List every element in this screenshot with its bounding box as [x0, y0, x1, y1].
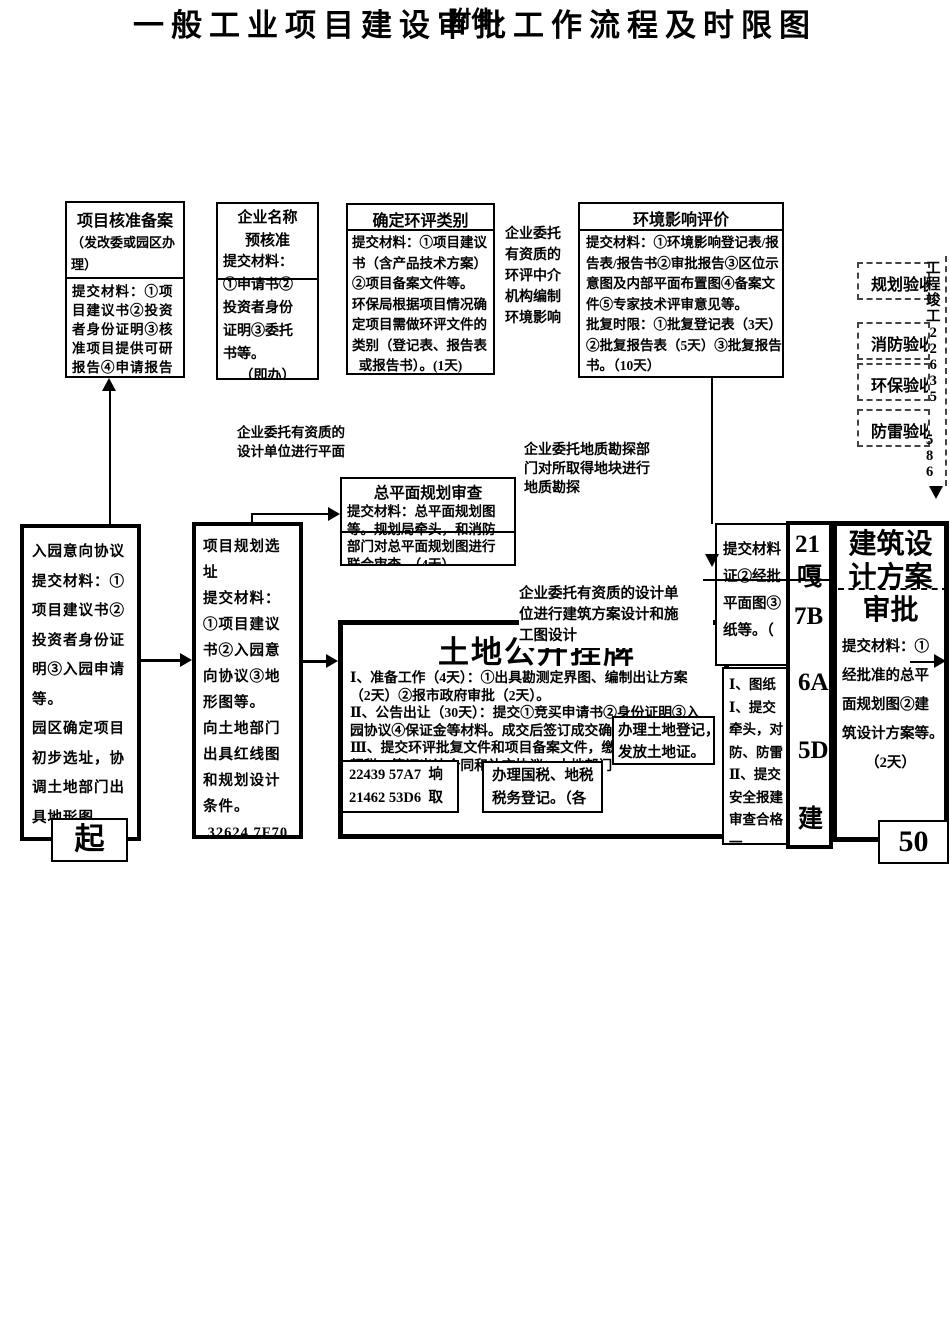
box-tax-registration: 办理国税、地税 税务登记。（各 — [482, 761, 603, 813]
box-land-registration: 办理土地登记， 发放土地证。 — [612, 716, 715, 765]
box-eia-review-body: 提交材料：①环境影响登记表/报 告表/报告书②审批报告③区位示 意图及内部平面布… — [580, 230, 782, 378]
box-column-a-body: 提交材料 证②经批 平面图③ 纸等。（ — [717, 525, 789, 645]
divider — [342, 531, 514, 533]
line-through-columns — [703, 579, 833, 581]
box-eia-category-body: 提交材料：①项目建议 书（含产品技术方案） ②项目备案文件等。 环保局根据项目情… — [348, 231, 493, 375]
arrow-right-icon-2 — [328, 507, 340, 521]
line-eia-down — [711, 378, 713, 524]
page-title: 一般工业项目建设审批工作流程及时限图 — [0, 0, 950, 45]
box-project-record-title: 项目核准备案 — [67, 203, 183, 231]
box-land-registration-body: 办理土地登记， 发放土地证。 — [614, 718, 713, 765]
box-project-record-body: 提交材料：①项 目建议书②投资 者身份证明③核 准项目提供可研 报告④申请报告 — [67, 277, 183, 378]
arrow-right-icon-1 — [180, 653, 192, 667]
column-c-glyph-6: 建 — [798, 799, 823, 835]
box-garbled-codes-body: 22439 57A7 垧 21462 53D6 取 — [343, 762, 457, 812]
box-eia-review-title: 环境影响评价 — [580, 204, 782, 230]
box-column-c: 21 嘎 7B 6A 5D 建 — [786, 521, 833, 849]
box-column-a: 提交材料 证②经批 平面图③ 纸等。（ — [715, 523, 791, 666]
flowchart-page: 附件: 一般工业项目建设审批工作流程及时限图 项目核准备案 （发改委或园区办 理… — [0, 0, 950, 1344]
divider — [67, 277, 183, 279]
box-fire-acceptance: 消防验收 — [857, 322, 930, 360]
box-name-precheck-note: （即办） — [218, 368, 317, 380]
line-site-to-masterplan — [251, 513, 330, 515]
divider — [580, 229, 782, 231]
arrow-right-icon-3 — [326, 654, 338, 668]
dashed-line-through-arch — [838, 588, 948, 590]
strip-completion-top: 工 程 竣 工 2 2 6 3 5 — [926, 261, 941, 405]
box-park-intent: 入园意向协议 提交材料：① 项目建议书② 投资者身份证 明③入园申请 等。 园区… — [20, 524, 141, 841]
box-name-precheck-title: 企业名称 预核准 — [218, 204, 317, 253]
box-column-b-body: Ⅰ、图纸 Ⅰ、提交 牵头，对 防、防雷 Ⅱ、提交 安全报建 审查合格 一 — [724, 669, 789, 845]
box-lightning-acceptance: 防雷验收 — [857, 409, 930, 447]
box-project-record: 项目核准备案 （发改委或园区办 理） 提交材料：①项 目建议书②投资 者身份证明… — [65, 201, 185, 378]
arrow-up-icon — [102, 378, 116, 391]
box-arch-approval-title: 建筑设 计方案 审批 — [837, 526, 944, 627]
box-name-precheck-label: 提交材料： — [218, 253, 317, 272]
column-c-glyph-1: 21 — [795, 531, 820, 559]
column-c-glyph-2: 嘎 — [797, 557, 822, 593]
box-eia-review: 环境影响评价 提交材料：①环境影响登记表/报 告表/报告书②审批报告③区位示 意… — [578, 202, 784, 378]
box-tax-registration-body: 办理国税、地税 税务登记。（各 — [484, 763, 601, 813]
column-c-glyph-4: 6A — [798, 669, 829, 697]
arrow-right-icon-4 — [934, 654, 946, 668]
box-arch-approval: 建筑设 计方案 审批 提交材料：① 经批准的总平 面规划图②建 筑设计方案等。 … — [832, 521, 949, 842]
divider — [218, 278, 317, 280]
note-geo-survey: 企业委托地质勘探部 门对所取得地块进行 地质勘探 — [524, 441, 650, 498]
note-arch-design: 企业委托有资质的设计单 位进行建筑方案设计和施 工图设计 — [519, 584, 713, 648]
box-eia-category: 确定环评类别 提交材料：①项目建议 书（含产品技术方案） ②项目备案文件等。 环… — [346, 203, 495, 375]
box-master-plan-title: 总平面规划审查 — [342, 479, 514, 503]
box-master-plan-review: 总平面规划审查 提交材料：总平面规划图 等。规划局牵头，和消防 部门对总平面规划… — [340, 477, 516, 566]
dashed-edge-line — [945, 256, 947, 486]
line-intent-to-record — [109, 389, 111, 524]
box-project-record-subtitle: （发改委或园区办 理） — [67, 231, 183, 277]
box-site-selection-body: 项目规划选 址 提交材料： ①项目建议 书②入园意 向协议③地 形图等。 向土地… — [196, 526, 299, 839]
note-plan-design: 企业委托有资质的 设计单位进行平面 — [237, 423, 345, 461]
note-eia-agency: 企业委托 有资质的 环评中介 机构编制 环境影响 — [505, 224, 561, 329]
start-box: 起 — [51, 818, 128, 862]
box-column-b: Ⅰ、图纸 Ⅰ、提交 牵头，对 防、防雷 Ⅱ、提交 安全报建 审查合格 一 — [722, 667, 791, 845]
box-planning-acceptance: 规划验收 — [857, 262, 930, 300]
box-name-precheck-body: ①申请书② 投资者身份 证明③委托 书等。 — [218, 272, 317, 368]
arrow-down-icon-1 — [705, 554, 719, 567]
column-c-glyph-3: 7B — [794, 603, 823, 631]
strip-completion-bottom: 5 8 6 — [926, 432, 933, 480]
box-env-acceptance: 环保验收 — [857, 363, 930, 401]
column-c-glyph-5: 5D — [798, 737, 829, 765]
divider — [348, 229, 493, 231]
box-garbled-codes: 22439 57A7 垧 21462 53D6 取 — [341, 760, 459, 813]
box-site-selection: 项目规划选 址 提交材料： ①项目建议 书②入园意 向协议③地 形图等。 向土地… — [192, 522, 303, 839]
box-eia-category-title: 确定环评类别 — [348, 205, 493, 231]
box-arch-approval-note: （2天） — [837, 749, 944, 778]
box-park-intent-body: 入园意向协议 提交材料：① 项目建议书② 投资者身份证 明③入园申请 等。 园区… — [24, 528, 137, 841]
box-arch-approval-body: 提交材料：① 经批准的总平 面规划图②建 筑设计方案等。 — [837, 627, 944, 749]
line-site-up — [251, 514, 253, 524]
arrow-down-right-edge-icon — [929, 486, 943, 499]
end-box: 50 — [878, 820, 949, 864]
box-master-plan-body: 提交材料：总平面规划图 等。规划局牵头，和消防 部门对总平面规划图进行 联合审查… — [342, 503, 514, 566]
box-name-precheck: 企业名称 预核准 提交材料： ①申请书② 投资者身份 证明③委托 书等。 （即办… — [216, 202, 319, 380]
